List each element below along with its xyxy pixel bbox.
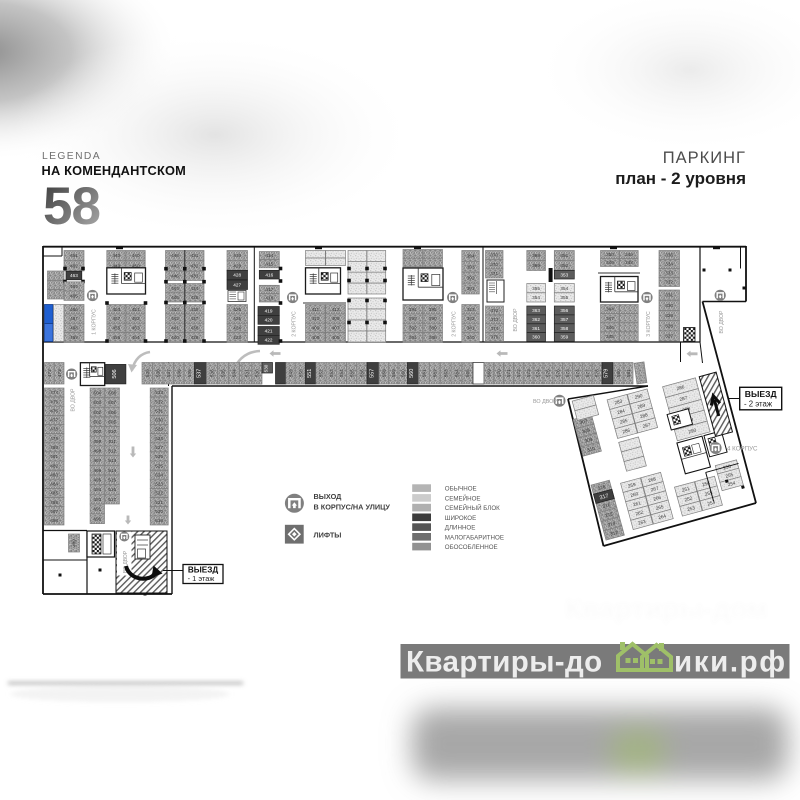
svg-text:553: 553 [329,369,334,377]
svg-text:479: 479 [50,436,58,441]
svg-text:477: 477 [50,418,58,423]
svg-text:422: 422 [265,338,273,343]
svg-text:418: 418 [265,296,273,301]
svg-text:406: 406 [332,316,340,321]
svg-text:602: 602 [93,410,101,415]
svg-text:1 КОРПУС: 1 КОРПУС [92,309,98,335]
svg-text:461: 461 [70,253,78,258]
svg-text:526: 526 [155,454,163,459]
svg-text:472: 472 [47,369,52,377]
svg-text:513: 513 [108,458,116,463]
svg-text:391: 391 [409,335,417,340]
svg-text:392: 392 [467,275,475,280]
svg-text:581: 581 [626,369,631,377]
svg-text:343: 343 [467,307,475,312]
svg-text:ВО ДВОР: ВО ДВОР [71,388,77,412]
svg-text:328: 328 [665,323,673,328]
svg-text:LEGENDA: LEGENDA [42,151,101,162]
svg-text:393: 393 [467,265,475,270]
svg-text:468: 468 [70,326,78,331]
svg-text:424: 424 [233,326,241,331]
svg-text:Квартиры-дом: Квартиры-дом [565,593,768,624]
svg-text:441: 441 [171,326,179,331]
svg-text:427: 427 [233,282,241,287]
svg-text:352: 352 [560,263,568,268]
svg-text:429: 429 [233,263,241,268]
svg-text:453: 453 [112,307,120,312]
svg-text:456: 456 [112,335,120,340]
svg-text:353: 353 [560,272,568,277]
svg-text:359: 359 [560,335,568,340]
svg-text:607: 607 [108,400,116,405]
svg-text:466: 466 [70,307,78,312]
svg-text:578: 578 [595,369,600,377]
svg-text:341: 341 [467,326,475,331]
svg-text:392: 392 [409,326,417,331]
svg-text:455: 455 [112,326,120,331]
svg-text:348: 348 [625,260,633,265]
svg-text:330: 330 [665,303,673,308]
svg-text:420: 420 [265,318,273,323]
svg-text:415: 415 [265,261,273,266]
svg-text:560: 560 [409,369,415,378]
svg-text:531: 531 [245,369,250,377]
svg-text:478: 478 [50,427,58,432]
svg-text:ВЫЕЗД: ВЫЕЗД [745,389,777,399]
svg-text:432: 432 [191,263,199,268]
svg-text:389: 389 [429,326,437,331]
svg-text:499: 499 [93,439,101,444]
svg-text:564: 564 [454,369,459,377]
svg-text:327: 327 [665,334,673,339]
svg-text:370: 370 [490,253,498,258]
svg-text:440: 440 [112,253,120,258]
svg-text:514: 514 [108,468,116,473]
svg-text:ВО ДВОР: ВО ДВОР [719,310,725,334]
svg-text:559: 559 [391,369,396,377]
svg-text:- 1 этаж: - 1 этаж [188,574,215,583]
svg-text:521: 521 [155,500,163,505]
svg-text:494: 494 [93,487,101,492]
svg-text:551: 551 [307,369,313,378]
svg-text:454: 454 [132,335,140,340]
svg-text:391: 391 [467,286,475,291]
svg-text:488: 488 [50,518,58,523]
svg-text:533: 533 [155,390,163,395]
svg-text:476: 476 [50,409,58,414]
svg-text:486: 486 [50,500,58,505]
svg-text:ики.рф: ики.рф [674,646,787,679]
svg-text:519: 519 [155,518,163,523]
svg-text:ШИРОКОЕ: ШИРОКОЕ [445,515,476,522]
svg-text:394: 394 [467,254,475,259]
svg-text:475: 475 [50,399,58,404]
svg-text:НА КОМЕНДАНТСКОМ: НА КОМЕНДАНТСКОМ [42,163,187,178]
svg-text:481: 481 [50,454,58,459]
svg-text:465: 465 [70,293,78,298]
svg-text:394: 394 [409,307,417,312]
svg-text:576: 576 [555,369,560,377]
svg-text:355: 355 [532,286,540,291]
svg-text:539: 539 [145,369,150,377]
svg-text:351: 351 [560,253,568,258]
svg-text:467: 467 [70,316,78,321]
svg-text:421: 421 [265,329,273,334]
svg-text:347: 347 [606,316,614,321]
svg-text:395: 395 [429,307,437,312]
svg-text:393: 393 [409,316,417,321]
svg-text:497: 497 [93,458,101,463]
svg-text:363: 363 [532,308,540,313]
svg-text:372: 372 [491,308,499,313]
svg-text:493: 493 [93,497,101,502]
svg-text:512: 512 [108,449,116,454]
svg-text:412: 412 [332,307,340,312]
svg-text:554: 554 [339,369,344,377]
svg-text:417: 417 [265,287,273,292]
svg-text:358: 358 [560,326,568,331]
svg-text:4 КОРПУС: 4 КОРПУС [727,446,758,453]
svg-text:354: 354 [560,286,568,291]
svg-text:435: 435 [191,295,199,300]
svg-text:340: 340 [467,335,475,340]
svg-text:473: 473 [57,369,62,377]
svg-text:370: 370 [490,262,498,267]
svg-text:398: 398 [532,253,540,258]
svg-text:346: 346 [606,325,614,330]
svg-text:538: 538 [155,369,160,377]
svg-text:354: 354 [532,295,540,300]
svg-text:525: 525 [155,463,163,468]
svg-text:482: 482 [50,463,58,468]
svg-text:ДЛИННОЕ: ДЛИННОЕ [445,525,476,532]
svg-text:530: 530 [264,364,269,372]
svg-text:530: 530 [155,418,163,423]
svg-text:570: 570 [496,369,501,377]
svg-text:524: 524 [155,472,163,477]
svg-text:428: 428 [233,273,241,278]
svg-text:453: 453 [132,326,140,331]
svg-text:357: 357 [560,317,568,322]
svg-text:355: 355 [560,295,568,300]
svg-text:579: 579 [604,369,610,378]
svg-text:463: 463 [70,273,78,278]
svg-text:408: 408 [311,335,319,340]
svg-text:573: 573 [526,369,531,377]
svg-text:531: 531 [155,409,163,414]
svg-text:361: 361 [532,326,540,331]
svg-text:601: 601 [93,420,101,425]
svg-text:440: 440 [171,335,179,340]
svg-text:574: 574 [575,369,580,377]
svg-text:335: 335 [665,253,673,258]
svg-text:ВЫХОД: ВЫХОД [314,492,343,501]
svg-text:489: 489 [72,539,77,547]
svg-text:574: 574 [536,369,541,377]
svg-text:Квартиры-до: Квартиры-до [406,646,603,679]
svg-text:565: 565 [465,369,470,377]
svg-text:527: 527 [155,445,163,450]
svg-text:349: 349 [625,252,633,257]
svg-text:416: 416 [265,272,273,277]
svg-text:577: 577 [585,369,590,377]
svg-text:2 КОРПУС: 2 КОРПУС [292,311,298,337]
svg-text:534: 534 [232,369,237,377]
svg-text:511: 511 [108,439,116,444]
svg-text:план - 2 уровня: план - 2 уровня [615,169,746,188]
svg-text:329: 329 [665,313,673,318]
svg-text:560: 560 [400,369,405,377]
svg-text:СЕМЕЙНОЕ: СЕМЕЙНОЕ [445,494,481,502]
svg-text:430: 430 [233,253,241,258]
svg-text:580: 580 [616,369,621,377]
svg-text:407: 407 [332,326,340,331]
svg-text:557: 557 [369,369,375,378]
svg-text:438: 438 [191,326,199,331]
svg-text:439: 439 [191,335,199,340]
svg-text:572: 572 [516,369,521,377]
svg-text:- 2 этаж: - 2 этаж [744,400,773,409]
svg-text:440: 440 [132,253,140,258]
svg-text:537: 537 [197,369,203,378]
svg-text:433: 433 [191,274,199,279]
svg-text:ПАРКИНГ: ПАРКИНГ [663,149,746,167]
svg-text:571: 571 [506,369,511,377]
svg-text:452: 452 [132,316,140,321]
svg-text:332: 332 [665,280,673,285]
svg-text:487: 487 [50,509,58,514]
svg-text:356: 356 [560,308,568,313]
svg-text:431: 431 [191,253,199,258]
svg-text:ЛИФТЫ: ЛИФТЫ [314,531,342,540]
svg-text:331: 331 [665,293,673,298]
svg-text:411: 411 [312,307,320,312]
svg-text:535: 535 [221,369,226,377]
svg-text:562: 562 [433,369,438,377]
svg-text:360: 360 [532,335,540,340]
svg-text:457: 457 [112,316,120,321]
svg-text:362: 362 [532,317,540,322]
svg-text:498: 498 [93,449,101,454]
svg-text:530: 530 [255,369,260,377]
svg-text:СЕМЕЙНЫЙ БЛОК: СЕМЕЙНЫЙ БЛОК [445,504,500,512]
svg-text:445: 445 [171,295,179,300]
svg-text:600: 600 [93,429,101,434]
svg-text:399: 399 [532,263,540,268]
svg-text:510: 510 [108,429,116,434]
svg-text:437: 437 [191,316,199,321]
svg-text:446: 446 [171,274,179,279]
svg-text:491: 491 [93,507,101,512]
svg-text:603: 603 [93,400,101,405]
svg-text:ВО ДВОР: ВО ДВОР [533,399,557,405]
svg-text:373: 373 [491,317,499,322]
svg-text:3 КОРПУС: 3 КОРПУС [646,311,652,337]
svg-text:485: 485 [50,491,58,496]
svg-text:480: 480 [50,445,58,450]
svg-text:606: 606 [108,410,116,415]
svg-text:409: 409 [311,326,319,331]
svg-text:552: 552 [319,369,324,377]
svg-text:375: 375 [491,335,499,340]
svg-text:483: 483 [50,472,58,477]
svg-text:410: 410 [311,316,319,321]
svg-text:528: 528 [155,436,163,441]
svg-text:423: 423 [233,335,241,340]
svg-text:438: 438 [191,307,199,312]
svg-text:МАЛОГАБАРИТНОЕ: МАЛОГАБАРИТНОЕ [445,534,504,541]
svg-text:549: 549 [289,369,294,377]
svg-text:517: 517 [108,497,116,502]
svg-text:556: 556 [360,369,365,377]
svg-text:371: 371 [490,271,498,276]
svg-text:390: 390 [429,316,437,321]
svg-text:462: 462 [70,263,78,268]
svg-text:532: 532 [155,399,163,404]
svg-text:434: 434 [191,286,199,291]
svg-text:405: 405 [332,335,340,340]
svg-text:442: 442 [171,316,179,321]
svg-text:426: 426 [233,307,241,312]
svg-text:529: 529 [155,427,163,432]
svg-text:523: 523 [155,482,163,487]
svg-text:536: 536 [176,369,181,377]
svg-text:443: 443 [171,263,179,268]
svg-text:349: 349 [606,260,614,265]
svg-text:419: 419 [265,309,273,314]
svg-text:563: 563 [443,369,448,377]
svg-text:495: 495 [93,478,101,483]
svg-text:58: 58 [43,177,100,236]
svg-text:490: 490 [93,516,101,521]
svg-text:569: 569 [487,369,492,377]
svg-text:535: 535 [187,369,192,377]
svg-text:342: 342 [467,316,475,321]
svg-text:550: 550 [298,369,303,377]
svg-text:573: 573 [565,369,570,377]
svg-text:ОБЫЧНОЕ: ОБЫЧНОЕ [445,486,477,493]
svg-text:443: 443 [171,307,179,312]
svg-text:516: 516 [108,487,116,492]
svg-text:451: 451 [132,307,140,312]
svg-text:555: 555 [349,369,354,377]
svg-text:484: 484 [50,482,58,487]
svg-text:575: 575 [546,369,551,377]
svg-text:506: 506 [112,369,118,378]
svg-text:537: 537 [166,369,171,377]
svg-text:388: 388 [429,335,437,340]
svg-text:334: 334 [665,262,673,267]
svg-text:515: 515 [108,478,116,483]
svg-text:444: 444 [171,286,179,291]
svg-text:561: 561 [422,369,427,377]
svg-text:464: 464 [70,284,78,289]
svg-text:520: 520 [155,509,163,514]
svg-text:604: 604 [93,391,101,396]
svg-text:558: 558 [381,369,386,377]
svg-text:605: 605 [108,420,116,425]
svg-text:2 КОРПУС: 2 КОРПУС [452,311,458,337]
svg-text:448: 448 [171,253,179,258]
svg-text:474: 474 [50,390,58,395]
svg-text:В КОРПУС/НА УЛИЦУ: В КОРПУС/НА УЛИЦУ [314,503,391,512]
svg-text:ОБОСОБЛЕННОЕ: ОБОСОБЛЕННОЕ [445,544,498,551]
svg-text:ВО ДВОР: ВО ДВОР [513,308,519,332]
svg-text:536: 536 [210,369,215,377]
svg-text:333: 333 [665,271,673,276]
svg-text:374: 374 [491,326,499,331]
svg-text:345: 345 [606,334,614,339]
svg-text:344: 344 [606,307,614,312]
svg-text:522: 522 [155,491,163,496]
svg-text:496: 496 [93,468,101,473]
svg-text:414: 414 [265,253,273,258]
svg-text:425: 425 [233,316,241,321]
svg-text:608: 608 [108,391,116,396]
svg-text:469: 469 [70,335,78,340]
svg-text:350: 350 [606,252,614,257]
